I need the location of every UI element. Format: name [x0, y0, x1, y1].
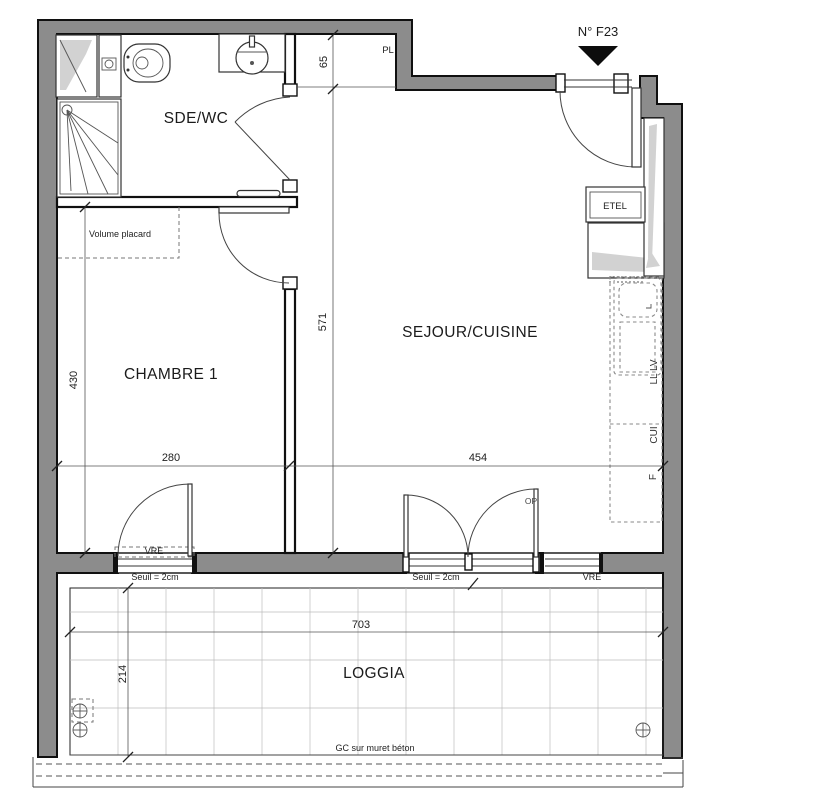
room-label-bathroom: SDE/WC [164, 110, 228, 127]
loggia-wall-openings: VRE Seuil = 2cm OP Seuil = 2cm VRE [113, 484, 603, 590]
bedroom-threshold-label: Seuil = 2cm [131, 572, 178, 582]
loggia-railing [33, 755, 683, 787]
exterior-walls [38, 20, 682, 758]
toilet-fix-dot [127, 69, 130, 72]
entrance-marker-icon [578, 46, 618, 66]
shower [57, 99, 121, 197]
gc-note-label: GC sur muret béton [335, 743, 414, 753]
bedroom-door-leaf [219, 207, 289, 213]
entrance-door-arc [560, 91, 636, 167]
entrance-jamb-left [556, 74, 565, 92]
etel-label: ETEL [603, 201, 627, 212]
dim-pl-depth: 65 [318, 56, 330, 68]
partition-bathroom-bottom [57, 197, 297, 207]
op-label: OP [525, 496, 538, 506]
living-kitchen: SEJOUR/CUISINE PL LL LV CUI F [296, 45, 662, 522]
entrance: N° F23 [556, 24, 641, 167]
living-window-label: VRE [583, 572, 602, 582]
kitchen-sink-drain [646, 304, 651, 308]
dim-loggia-depth: 214 [117, 665, 129, 683]
french-door-leaf-left [404, 495, 408, 557]
partition-bedroom-living [285, 289, 295, 553]
floor-plan-page: N° F23 ETEL [0, 0, 816, 800]
kitchen-label: CUI [649, 426, 660, 443]
volume-placard-label: Volume placard [89, 229, 151, 239]
loggia: LOGGIA GC sur muret béton [33, 588, 683, 787]
dim-living-width: 454 [469, 452, 487, 464]
window-cap [540, 553, 544, 573]
bedroom-door-arc [219, 213, 289, 283]
entrance-jamb-right [614, 74, 628, 93]
bedroom-window-label: VRE [145, 546, 164, 556]
fridge-label: F [648, 474, 659, 480]
wall-right-envelope [602, 76, 682, 758]
room-label-loggia: LOGGIA [343, 665, 405, 682]
drain-box [72, 699, 93, 722]
dim-loggia-width: 703 [352, 619, 370, 631]
partition-bathroom-right [285, 34, 295, 86]
technical-shafts: ETEL [586, 118, 664, 283]
living-threshold-label: Seuil = 2cm [412, 572, 459, 582]
living-window-body [543, 553, 602, 573]
dim-bedroom-width: 280 [162, 452, 180, 464]
entrance-door-leaf [632, 88, 641, 167]
dim-living-length: 571 [317, 313, 329, 331]
door-jamb [283, 180, 297, 192]
appliances-label: LL LV [649, 359, 660, 384]
pl-label: PL [382, 45, 394, 56]
french-door-arc-left [406, 495, 468, 557]
towel-bar [237, 191, 280, 197]
kitchen-sink [619, 283, 657, 317]
room-label-bedroom: CHAMBRE 1 [124, 366, 218, 383]
toilet-fix-dot [127, 56, 130, 59]
bedroom: Volume placard CHAMBRE 1 [57, 207, 289, 383]
dim-bedroom-length: 430 [68, 371, 80, 389]
dimensions: 65 571 430 280 454 703 214 [52, 30, 668, 762]
floor-plan-svg: N° F23 ETEL [0, 0, 816, 800]
door-jamb [283, 84, 297, 96]
floor-drains [72, 699, 650, 737]
washbasin-tap [250, 36, 255, 47]
wall-loggia-middle [192, 553, 406, 573]
window-cap [599, 553, 603, 573]
washbasin-drain [250, 61, 254, 65]
bedroom-window-leaf [188, 484, 192, 556]
bedroom-window-body [116, 553, 194, 573]
bathroom: SDE/WC [56, 34, 290, 197]
kitchen-strip-outline [610, 277, 662, 522]
bathroom-door-leaf [235, 122, 290, 180]
bathroom-door-arc [235, 97, 290, 122]
unit-label: N° F23 [578, 24, 619, 39]
room-label-living: SEJOUR/CUISINE [402, 324, 538, 341]
